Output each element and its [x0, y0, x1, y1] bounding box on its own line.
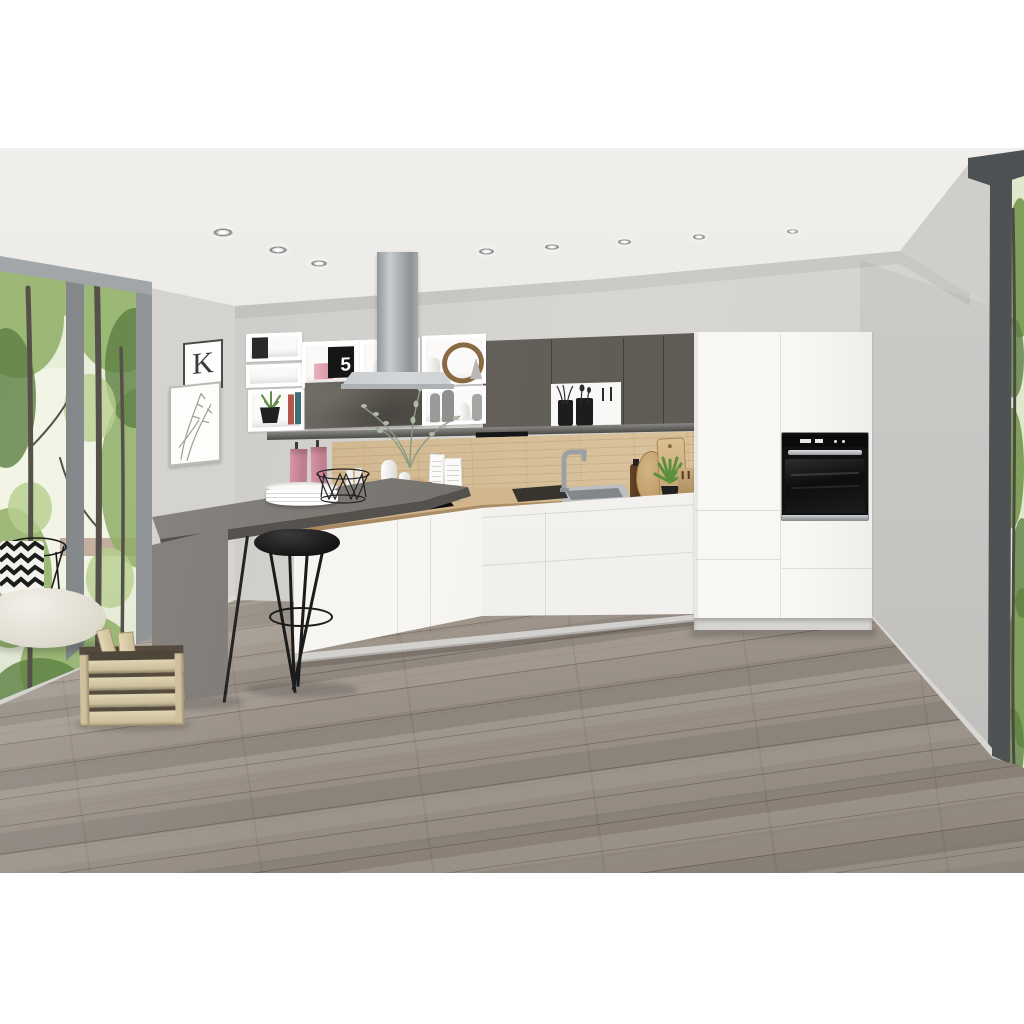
botanical-print [169, 381, 221, 466]
ceiling-spotlight [692, 234, 706, 240]
door-seam [782, 568, 872, 569]
knife-slot [688, 471, 690, 479]
book [288, 394, 294, 424]
faucet [552, 444, 596, 492]
crate-slat [80, 676, 184, 691]
oven-button [842, 440, 845, 443]
poster-letter: K [185, 341, 221, 387]
oven-button [834, 440, 837, 443]
shadow [246, 682, 358, 697]
kitchen-photo: K [0, 0, 1024, 1024]
built-in-oven [782, 433, 868, 520]
cabinet-seam [623, 338, 624, 426]
ceiling-spotlight [212, 228, 234, 237]
kitchen-scene: K [0, 148, 1024, 873]
ceiling-spotlight [310, 260, 328, 267]
stool-footrest [269, 607, 333, 627]
crate-slat [80, 659, 184, 674]
door-seam [780, 334, 781, 618]
shelf-box [246, 363, 302, 388]
oven-display [815, 439, 823, 443]
calendar-card: 5 [328, 346, 354, 378]
oven-door [785, 459, 865, 513]
door-seam [696, 559, 780, 560]
bar-stool-seat [254, 529, 340, 556]
tall-plinth [694, 618, 872, 630]
crate-slat [80, 710, 184, 727]
oven-trim [782, 515, 868, 520]
book [295, 392, 301, 424]
ceiling-spotlight [268, 246, 288, 254]
door-seam [430, 516, 431, 632]
board-hole [668, 444, 672, 448]
plant-pot [260, 407, 280, 424]
glass-reflection [791, 485, 859, 489]
knife-slot [682, 471, 684, 479]
eucalyptus-branches [352, 376, 468, 468]
ceiling-spotlight [544, 244, 560, 250]
door-seam [696, 510, 780, 511]
shelf-box [248, 388, 304, 432]
crate-post [79, 655, 89, 725]
shelf-plant [256, 389, 286, 410]
hood-duct [377, 252, 418, 373]
door-seam [545, 512, 546, 616]
whisk-utensils [553, 384, 597, 404]
hanging-utensil [610, 387, 612, 401]
oven-handle [788, 450, 862, 455]
botanical-sketch [171, 383, 219, 464]
photo-frame [252, 337, 268, 359]
ceiling-spotlight [478, 248, 495, 255]
wire-basket [316, 468, 370, 504]
wooden-crate [79, 645, 184, 727]
bottle-vase [472, 394, 482, 421]
ceiling-spotlight [617, 239, 632, 245]
oven-control-panel [782, 435, 868, 447]
glass-reflection [791, 472, 859, 476]
oven-display [800, 439, 811, 443]
door-seam [397, 520, 398, 642]
crate-slat [80, 693, 184, 708]
utensil-crock [558, 400, 573, 427]
cabinet-seam [663, 336, 664, 425]
shelf-box [246, 332, 302, 362]
ceiling-spotlight [786, 229, 799, 234]
hanging-utensil [602, 388, 604, 401]
crate-post [174, 653, 184, 723]
calendar-number: 5 [340, 354, 351, 376]
chevron-cushion [0, 541, 44, 595]
